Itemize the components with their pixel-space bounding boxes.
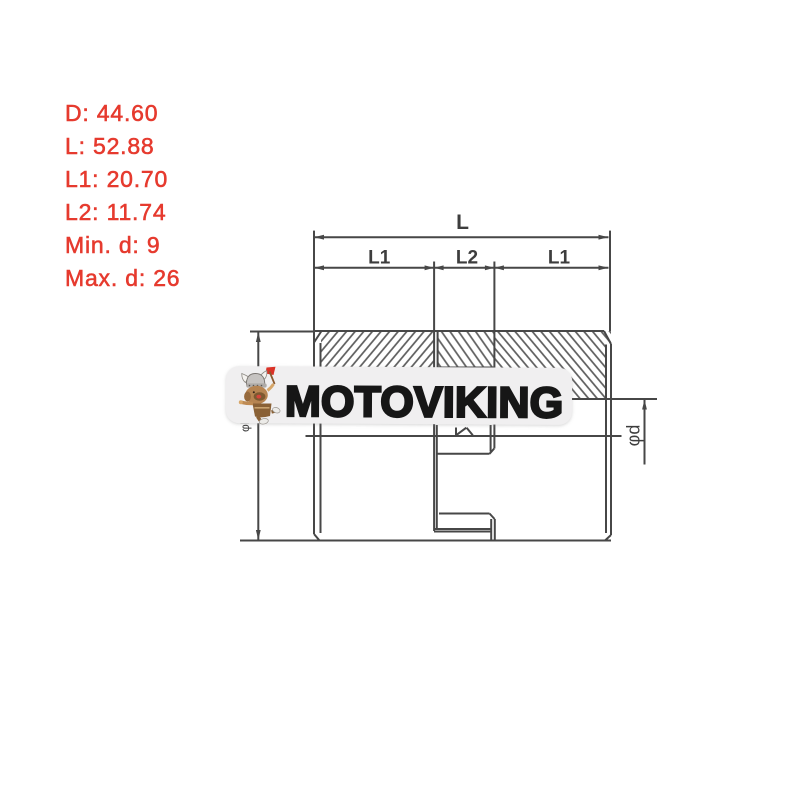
svg-text:MOTOVIKING: MOTOVIKING <box>285 378 564 427</box>
